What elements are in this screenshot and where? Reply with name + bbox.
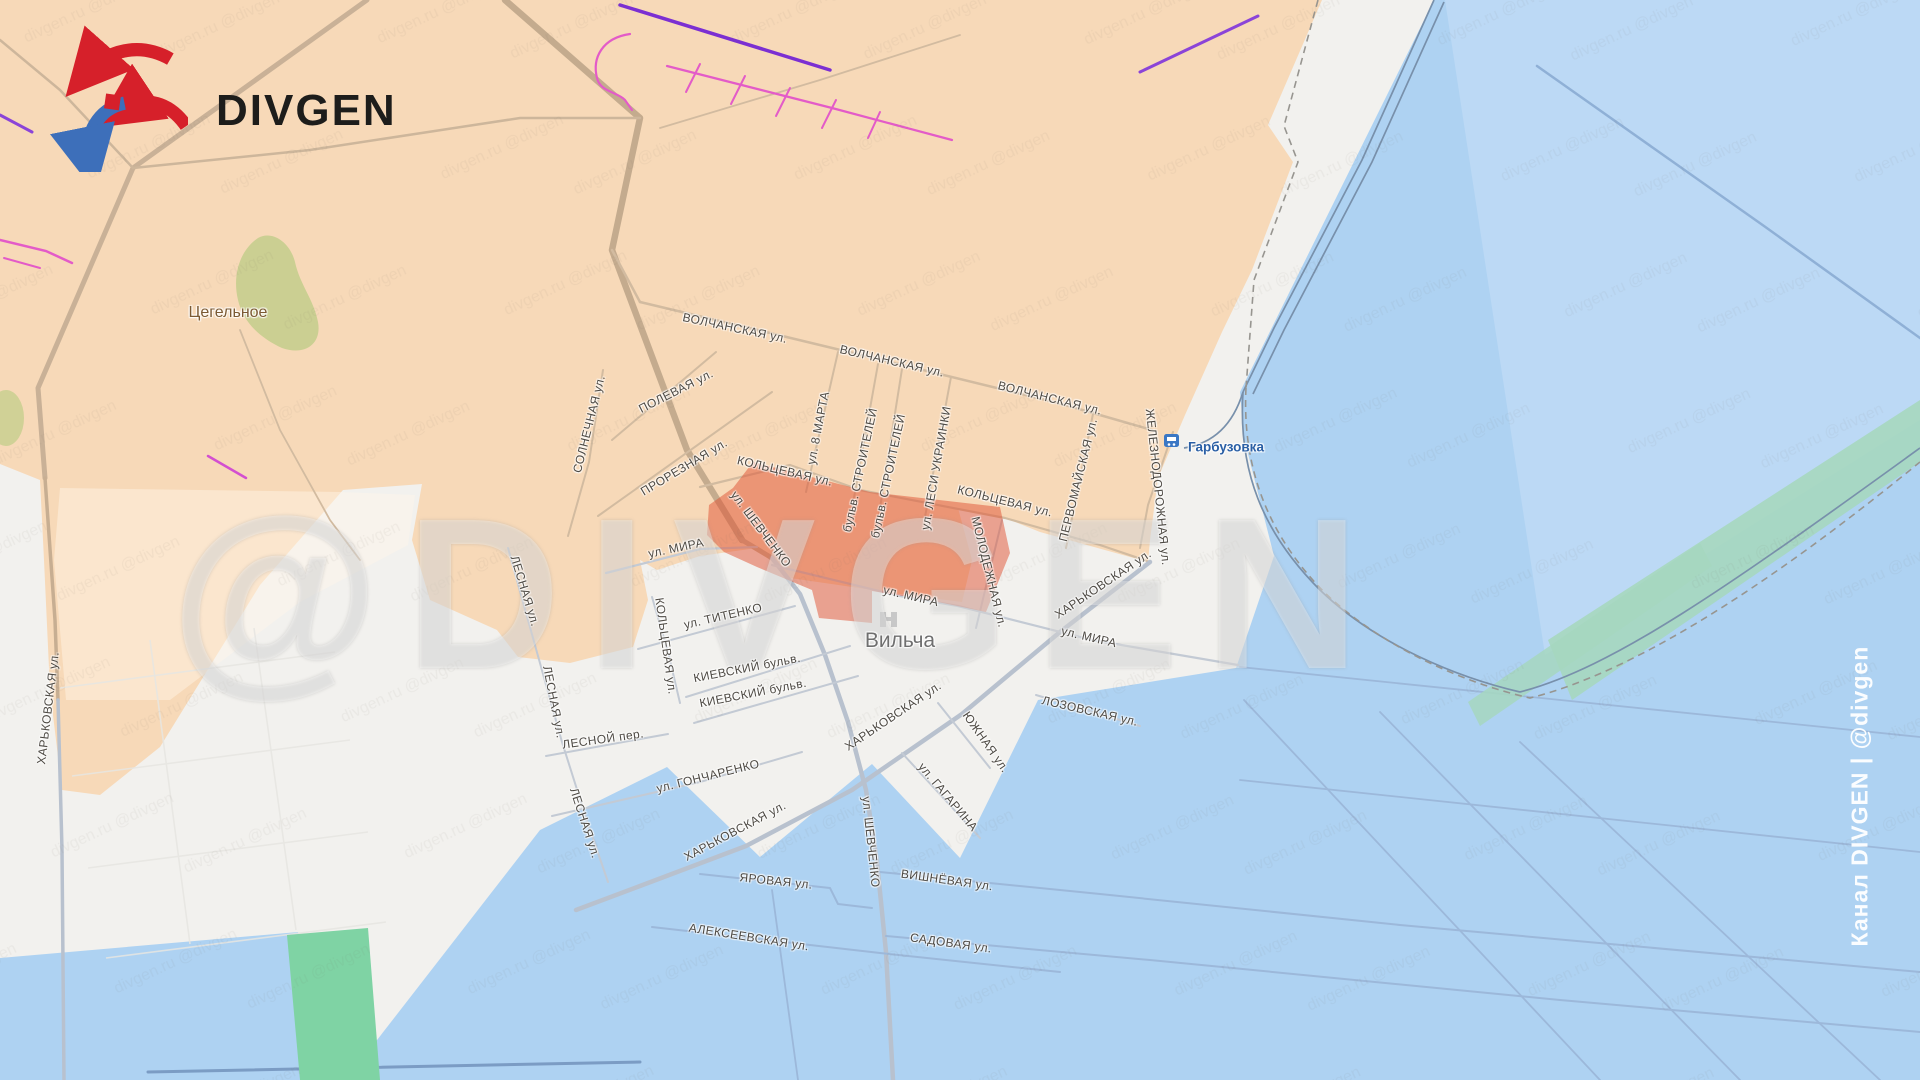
place-label: Цегельное <box>189 304 268 322</box>
brand-logo-icon <box>38 22 188 172</box>
channel-watermark: Канал DIVGEN | @divgen <box>1847 527 1874 947</box>
map-screenshot: divgen.ru @divgen divgen.ru @divgen <box>0 0 1920 1080</box>
place-label: Вильча <box>865 629 935 653</box>
brand-logo: DIVGEN <box>38 22 397 172</box>
brand-name: DIVGEN <box>216 86 397 136</box>
place-label: Гарбузовка <box>1188 440 1264 455</box>
